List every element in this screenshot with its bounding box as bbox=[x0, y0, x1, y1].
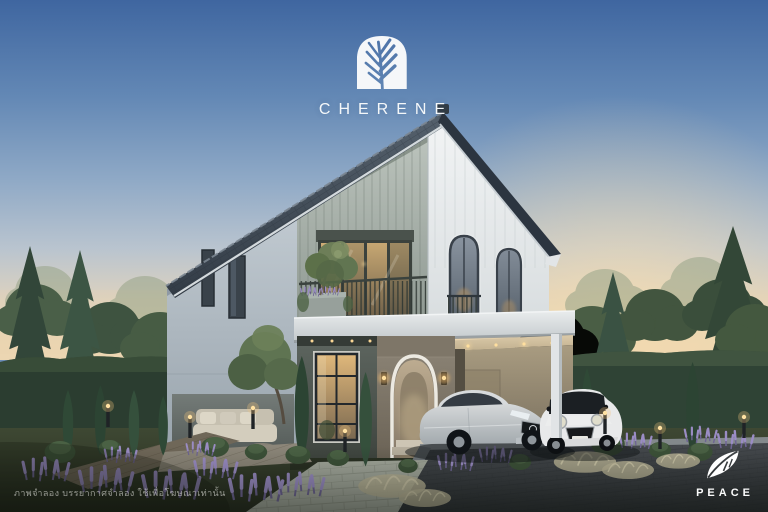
arch-leaf-icon bbox=[357, 36, 407, 94]
arched-window-left bbox=[447, 236, 481, 324]
developer-wordmark: PEACE bbox=[692, 487, 754, 499]
carport-post bbox=[551, 334, 562, 438]
tall-window bbox=[313, 351, 360, 443]
poster: CHERENE PEACE ภาพจำลอง บรรยากาศจำลอง ใช้… bbox=[0, 0, 768, 512]
project-wordmark: CHERENE bbox=[311, 101, 453, 119]
project-logo: CHERENE bbox=[311, 36, 453, 119]
disclaimer-text: ภาพจำลอง บรรยากาศจำลอง ใช้เพื่อโฆษณาเท่า… bbox=[14, 486, 226, 500]
developer-logo: PEACE bbox=[692, 449, 754, 499]
feather-icon bbox=[701, 447, 744, 486]
